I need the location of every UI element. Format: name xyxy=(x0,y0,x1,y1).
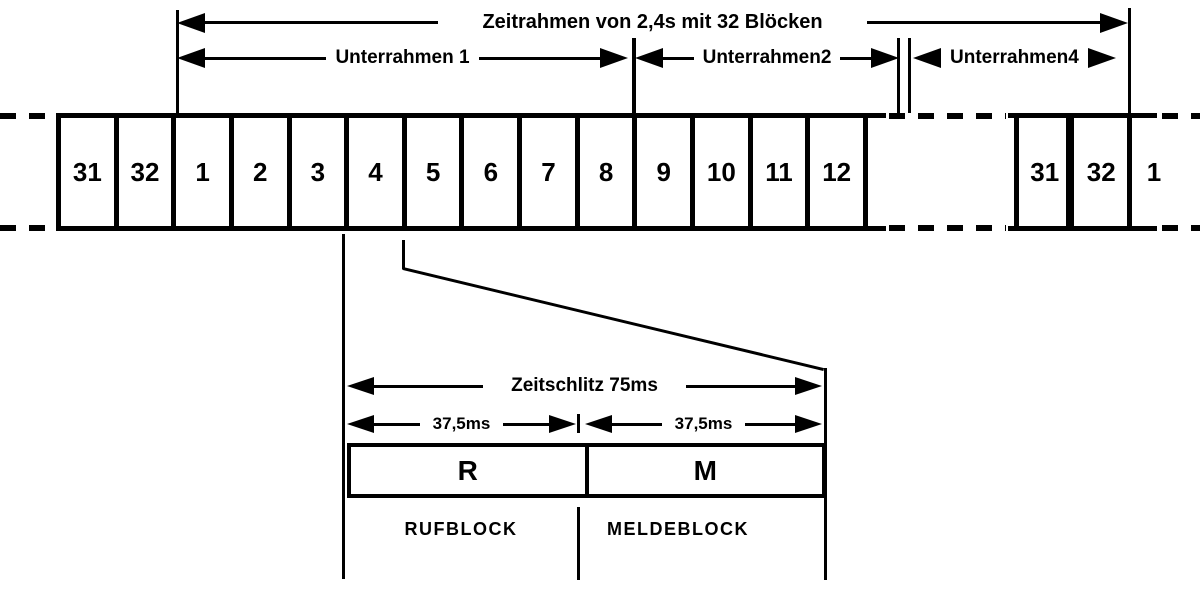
detail-connector-stub xyxy=(402,240,405,269)
row-border-bottom xyxy=(1008,226,1157,231)
block-cell: 11 xyxy=(748,118,806,226)
arrow-line xyxy=(663,57,694,60)
block-cell: 31 xyxy=(1019,118,1071,226)
row-border-extension xyxy=(863,113,886,118)
half-slot-arrow-1: 37,5ms xyxy=(347,414,576,434)
arrowhead-right-icon xyxy=(871,48,899,68)
block-cell: 8 xyxy=(575,118,633,226)
detail-connector-diagonal xyxy=(402,267,824,371)
timeframe-diagram: { "frame_arrow": "Zeitrahmen von 2,4s mi… xyxy=(0,0,1200,600)
arrow-line xyxy=(686,385,795,388)
timeslot-box: R M xyxy=(347,443,826,498)
row-dashed-continuation xyxy=(0,113,55,119)
block-row-right-group: 3132 xyxy=(1019,118,1127,226)
arrowhead-right-icon xyxy=(795,377,822,395)
arrowhead-right-icon xyxy=(1100,13,1128,33)
row-dashed-continuation xyxy=(889,113,1006,119)
subframe1-label: Unterrahmen 1 xyxy=(326,47,478,69)
row-dashed-continuation xyxy=(1162,113,1200,119)
arrow-line xyxy=(374,423,420,426)
arrow-line xyxy=(205,57,326,60)
arrowhead-left-icon xyxy=(585,415,612,433)
meldeblock-label: MELDEBLOCK xyxy=(558,517,798,541)
block-cell: 6 xyxy=(459,118,517,226)
arrowhead-right-icon xyxy=(1088,48,1116,68)
block-cell: 2 xyxy=(229,118,287,226)
arrowhead-left-icon xyxy=(347,415,374,433)
rufblock-label: RUFBLOCK xyxy=(343,517,579,541)
block-cell: 1 xyxy=(1132,118,1176,226)
frame-arrow-label: Zeitrahmen von 2,4s mit 32 Blöcken xyxy=(438,11,866,34)
block-row-table: 3132123456789101112 xyxy=(56,113,868,231)
subframe4-label: Unterrahmen4 xyxy=(941,47,1088,69)
block-cell: 4 xyxy=(344,118,402,226)
arrowhead-left-icon xyxy=(177,13,205,33)
half-slot-label-2: 37,5ms xyxy=(662,414,746,434)
arrowhead-right-icon xyxy=(549,415,576,433)
block-cell: 31 xyxy=(61,118,114,226)
arrow-line xyxy=(205,21,438,24)
timeslot-label: Zeitschlitz 75ms xyxy=(483,375,686,397)
block-cell: 32 xyxy=(1066,118,1128,226)
half-slot-label-1: 37,5ms xyxy=(420,414,504,434)
arrow-line xyxy=(745,423,795,426)
meldeblock-cell: M xyxy=(585,447,823,494)
timeslot-arrow: Zeitschlitz 75ms xyxy=(347,375,822,397)
arrowhead-left-icon xyxy=(913,48,941,68)
frame-span-arrow: Zeitrahmen von 2,4s mit 32 Blöcken xyxy=(177,11,1128,34)
arrow-line xyxy=(503,423,549,426)
break-mark-line xyxy=(908,38,911,113)
row-dashed-continuation xyxy=(0,225,55,231)
arrowhead-left-icon xyxy=(177,48,205,68)
block-cell: 1 xyxy=(171,118,229,226)
block-cell: 5 xyxy=(402,118,460,226)
arrowhead-left-icon xyxy=(347,377,374,395)
frame-end-line xyxy=(1128,8,1131,113)
rufblock-cell: R xyxy=(351,447,585,494)
arrow-line xyxy=(867,21,1100,24)
subframe-boundary-line xyxy=(632,38,636,113)
frame-start-line xyxy=(176,10,179,113)
arrowhead-right-icon xyxy=(795,415,822,433)
block-cell: 9 xyxy=(632,118,690,226)
subframe1-arrow: Unterrahmen 1 xyxy=(177,47,628,69)
row-dashed-continuation xyxy=(889,225,1006,231)
arrow-line xyxy=(840,57,871,60)
block-cell: 3 xyxy=(287,118,345,226)
subframe2-label: Unterrahmen2 xyxy=(694,47,841,69)
arrow-line xyxy=(612,423,662,426)
arrowhead-left-icon xyxy=(635,48,663,68)
block-cell: 32 xyxy=(114,118,172,226)
arrowhead-right-icon xyxy=(600,48,628,68)
break-mark-line xyxy=(897,38,900,113)
row-border-extension xyxy=(863,226,886,231)
block-cell: 10 xyxy=(690,118,748,226)
half-slot-arrow-2: 37,5ms xyxy=(585,414,822,434)
arrow-line xyxy=(374,385,483,388)
arrow-line xyxy=(479,57,600,60)
subframe4-arrow: Unterrahmen4 xyxy=(913,47,1128,69)
block-cell: 7 xyxy=(517,118,575,226)
subframe2-arrow: Unterrahmen2 xyxy=(635,47,899,69)
half-slot-tick xyxy=(577,414,580,433)
row-dashed-continuation xyxy=(1162,225,1200,231)
block-cell: 12 xyxy=(805,118,863,226)
